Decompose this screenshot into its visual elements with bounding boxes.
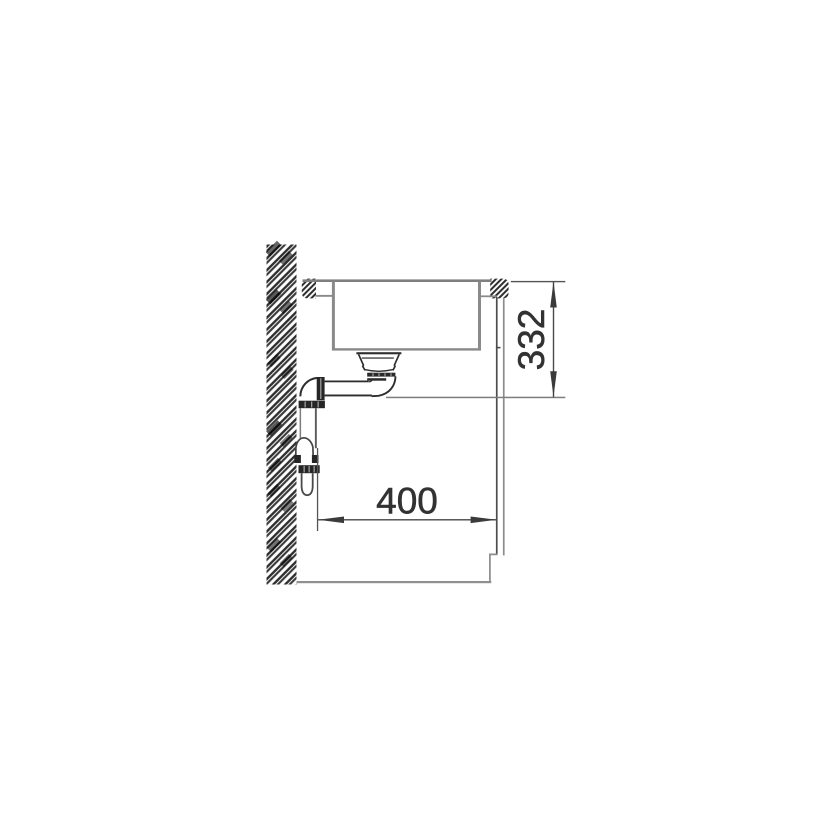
svg-text:400: 400 [376,480,438,521]
svg-text:332: 332 [511,309,552,371]
